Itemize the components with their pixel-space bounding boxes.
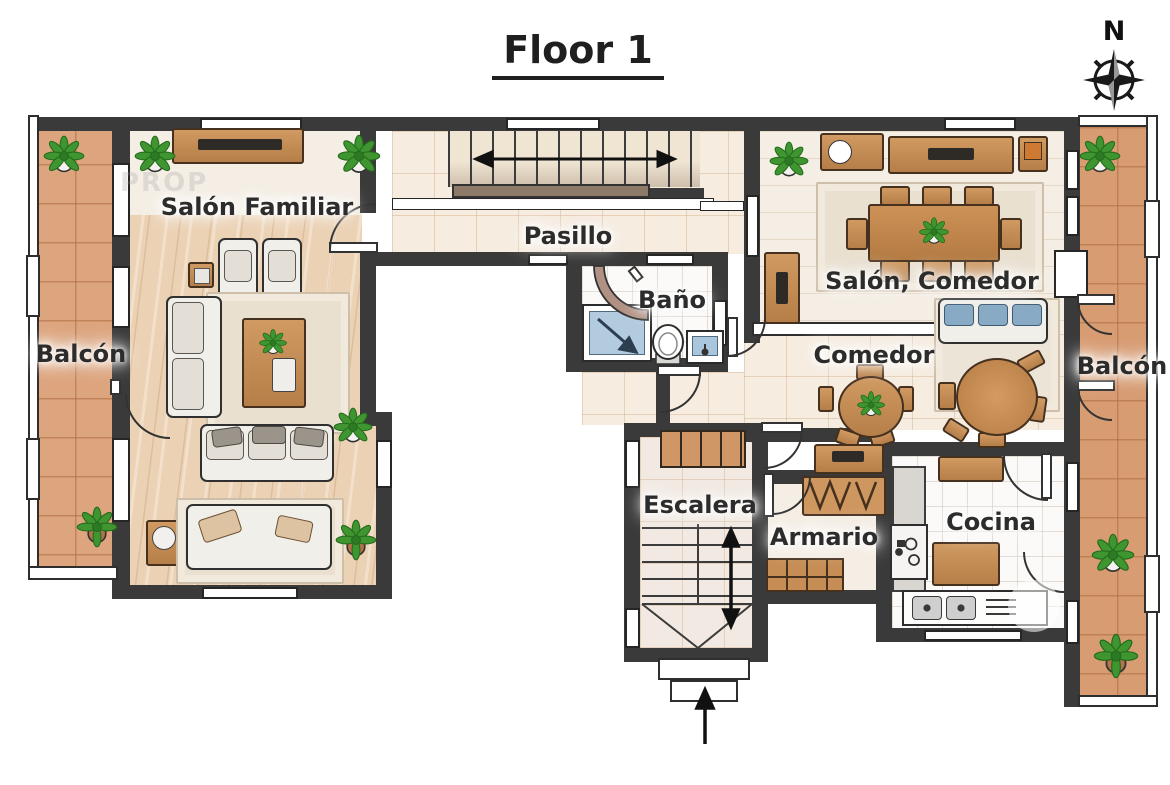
railing-post (1144, 555, 1160, 613)
room-label-balcon-left: Balcón (36, 340, 127, 368)
shower-pan (589, 311, 645, 355)
wall-salon-right-mid (360, 252, 376, 420)
compass-icon (1082, 48, 1146, 112)
window (1066, 600, 1079, 644)
railing-post (26, 255, 40, 317)
chair (818, 386, 834, 412)
title-underline (492, 76, 664, 80)
balcony-right-railing-bottom (1078, 695, 1158, 707)
plant (1090, 532, 1136, 578)
room-label-comedor: Comedor (814, 341, 935, 369)
lamp-icon (152, 526, 176, 550)
page-title: Floor 1 (503, 28, 653, 72)
stair-landing-strip (700, 201, 744, 211)
desk-pad (832, 451, 864, 462)
side-cabinet-top (1024, 142, 1042, 160)
window (646, 254, 694, 265)
pillow (252, 426, 286, 444)
stove (890, 524, 928, 580)
plant (258, 328, 288, 358)
room-label-pasillo: Pasillo (524, 222, 613, 250)
dining-chair (1000, 218, 1022, 250)
tall-cabinet-slot (776, 272, 788, 304)
kitchen-counter-top (938, 456, 1004, 482)
entry-porch-step (670, 680, 738, 702)
room-divider-sill (752, 322, 964, 336)
closet (802, 476, 886, 516)
plant (336, 133, 382, 179)
kitchen-island (932, 542, 1000, 586)
sofa-cushion-blue (944, 304, 974, 326)
room-label-armario: Armario (770, 523, 878, 551)
upper-flight-steps (660, 430, 746, 468)
wall-corridor (656, 372, 670, 425)
wall-cabinet (1054, 250, 1088, 298)
railing-post (1144, 200, 1160, 258)
coffee-table-tray (272, 358, 296, 392)
window (1066, 196, 1079, 236)
dining-chair (846, 218, 868, 250)
dining-chair (880, 186, 910, 206)
balcony-left-railing-bottom (28, 566, 118, 580)
plant (856, 390, 886, 420)
plant (1078, 134, 1122, 178)
floor-plan: Floor 1 N (0, 0, 1170, 785)
room-label-escalera: Escalera (643, 491, 757, 519)
plant (75, 505, 119, 549)
chair (938, 382, 956, 410)
balcony-right-floor (1078, 127, 1150, 697)
dining-chair (964, 186, 994, 206)
room-label-cocina: Cocina (946, 508, 1036, 536)
sink-basin (692, 336, 718, 356)
window (746, 195, 759, 257)
window (625, 608, 640, 648)
railing-post (26, 438, 40, 500)
room-label-salon-comedor: Salón, Comedor (825, 267, 1039, 295)
plant (332, 406, 374, 448)
window (202, 587, 298, 599)
wall (36, 117, 114, 131)
balcony-right-railing-top (1078, 115, 1150, 127)
window (112, 266, 130, 328)
upper-stairs-treads (448, 131, 700, 187)
watermark: PROP (120, 168, 208, 198)
stair-handrail (452, 184, 650, 198)
armchair-cushion (268, 250, 296, 282)
plant (768, 140, 810, 182)
side-table-tray (194, 268, 210, 284)
wall-bano-left (566, 252, 582, 372)
plant (1092, 632, 1140, 680)
cabinet-bowl (828, 140, 852, 164)
wall-armario-bottom (752, 590, 892, 604)
watermark-blotch (1008, 580, 1060, 632)
sink-basin (946, 596, 976, 620)
stair-landing-strip (392, 198, 714, 210)
window (528, 254, 568, 265)
armchair-cushion (224, 250, 252, 282)
window (924, 630, 1022, 641)
wall-escalera-right (752, 423, 768, 662)
shelf-unit (766, 558, 844, 592)
dining-chair (922, 186, 952, 206)
escalera-floor (640, 437, 754, 650)
sofa-cushion (172, 358, 204, 410)
sofa-cushion-blue (978, 304, 1008, 326)
window (506, 118, 600, 130)
room-label-bano: Baño (638, 286, 706, 314)
tv-icon (198, 139, 282, 150)
window (625, 440, 640, 488)
compass-north-label: N (1103, 16, 1126, 47)
window (376, 440, 392, 488)
window (944, 118, 1016, 130)
sink-basin (912, 596, 942, 620)
entry-porch-step (658, 658, 750, 680)
plant (42, 134, 86, 178)
plant (334, 518, 378, 562)
sofa-cushion-blue (1012, 304, 1042, 326)
room-label-balcon-right: Balcón (1077, 352, 1168, 380)
plant (918, 216, 950, 248)
sofa-cushion (172, 302, 204, 354)
round-table-big (956, 358, 1038, 436)
window (1066, 462, 1079, 512)
sideboard-slot (928, 148, 974, 160)
pillow (293, 426, 325, 448)
